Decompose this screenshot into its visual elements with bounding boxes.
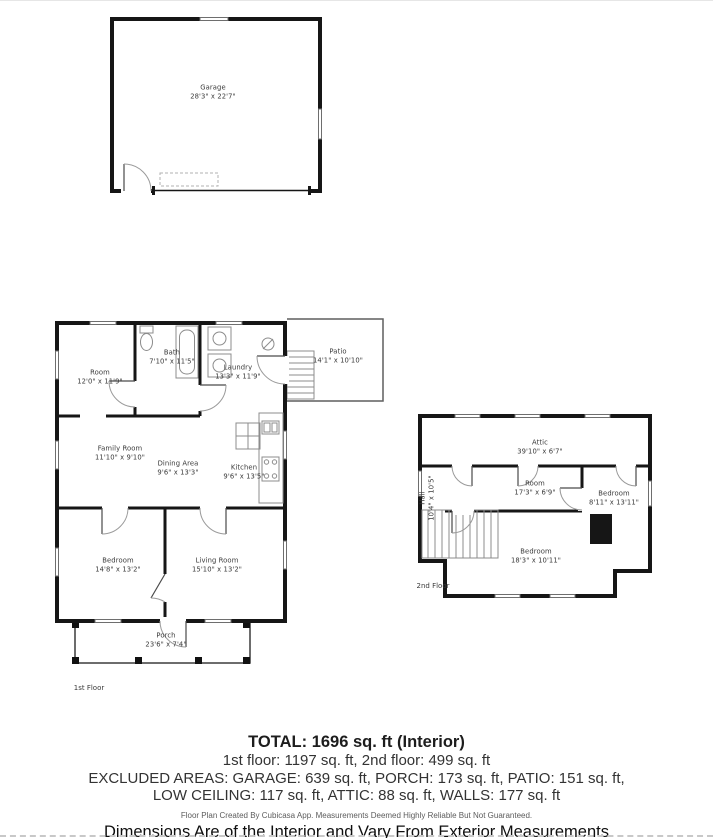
- summary-disclaimer: Floor Plan Created By Cubicasa App. Meas…: [0, 811, 713, 820]
- floor-plan-page: Garage 28'3" x 22'7" Room 12'0" x 11'9" …: [0, 0, 713, 838]
- room-dims: 23'6" x 7'4": [145, 640, 186, 649]
- room-dims: 18'3" x 10'11": [511, 556, 561, 565]
- garage-plan: [108, 15, 324, 195]
- room-label-living-room: Living Room 15'10" x 13'2": [192, 557, 242, 574]
- room-name: Porch: [145, 632, 186, 641]
- room-label-bedroom-large: Bedroom 18'3" x 10'11": [511, 548, 561, 565]
- room-label-room-1f: Room 12'0" x 11'9": [77, 369, 123, 386]
- room-label-bedroom-1f: Bedroom 14'8" x 13'2": [95, 557, 141, 574]
- room-name: Patio: [313, 348, 363, 357]
- room-dims: 14'8" x 13'2": [95, 565, 141, 574]
- room-label-bath: Bath 7'10" x 11'5": [149, 349, 195, 366]
- area-summary: TOTAL: 1696 sq. ft (Interior) 1st floor:…: [0, 732, 713, 838]
- room-dims: 8'11" x 13'11": [589, 498, 639, 507]
- summary-floors: 1st floor: 1197 sq. ft, 2nd floor: 499 s…: [0, 752, 713, 770]
- room-label-hall: Hall 10'4" x 10'5": [419, 475, 436, 521]
- room-dims: 39'10" x 6'7": [517, 447, 563, 456]
- room-label-room-2f: Room 17'3" x 6'9": [514, 480, 555, 497]
- room-dims: 9'6" x 13'3": [157, 468, 198, 477]
- room-name: Garage: [190, 84, 236, 93]
- room-name: Attic: [517, 439, 563, 448]
- room-name: Dining Area: [157, 460, 198, 469]
- room-label-bedroom-small: Bedroom 8'11" x 13'11": [589, 490, 639, 507]
- garage-outer-walls: [112, 19, 320, 191]
- room-label-dining-area: Dining Area 9'6" x 13'3": [157, 460, 198, 477]
- room-dims: 12'0" x 11'9": [77, 377, 123, 386]
- room-label-garage: Garage 28'3" x 22'7": [190, 84, 236, 101]
- bottom-dashed-divider: [0, 835, 713, 837]
- room-label-patio: Patio 14'1" x 10'10": [313, 348, 363, 365]
- room-dims: 17'3" x 6'9": [514, 488, 555, 497]
- floor-label-1st: 1st Floor: [74, 684, 105, 692]
- room-name: Bedroom: [511, 548, 561, 557]
- room-name: Kitchen: [223, 464, 264, 473]
- room-name: Room: [514, 480, 555, 489]
- room-dims: 7'10" x 11'5": [149, 357, 195, 366]
- summary-excluded-line1: EXCLUDED AREAS: GARAGE: 639 sq. ft, PORC…: [0, 770, 713, 788]
- room-label-porch: Porch 23'6" x 7'4": [145, 632, 186, 649]
- room-name: Bath: [149, 349, 195, 358]
- room-name: Room: [77, 369, 123, 378]
- room-name: Bedroom: [95, 557, 141, 566]
- room-name: Hall: [419, 475, 428, 521]
- room-name: Living Room: [192, 557, 242, 566]
- summary-excluded-line2: LOW CEILING: 117 sq. ft, ATTIC: 88 sq. f…: [0, 787, 713, 805]
- patio-stairs: [287, 351, 314, 399]
- room-name: Laundry: [215, 364, 261, 373]
- room-name: Bedroom: [589, 490, 639, 499]
- room-dims: 9'6" x 13'5": [223, 472, 264, 481]
- room-dims: 15'10" x 13'2": [192, 565, 242, 574]
- summary-total: TOTAL: 1696 sq. ft (Interior): [0, 732, 713, 752]
- wall-block: [590, 514, 612, 544]
- room-label-laundry: Laundry 13'3" x 11'9": [215, 364, 261, 381]
- floor-label-2nd: 2nd Floor: [417, 582, 450, 590]
- room-dims: 11'10" x 9'10": [95, 453, 145, 462]
- room-name: Family Room: [95, 445, 145, 454]
- room-dims: 13'3" x 11'9": [215, 372, 261, 381]
- room-dims: 10'4" x 10'5": [427, 475, 436, 521]
- room-label-family-room: Family Room 11'10" x 9'10": [95, 445, 145, 462]
- room-label-attic: Attic 39'10" x 6'7": [517, 439, 563, 456]
- room-dims: 28'3" x 22'7": [190, 92, 236, 101]
- room-label-kitchen: Kitchen 9'6" x 13'5": [223, 464, 264, 481]
- room-dims: 14'1" x 10'10": [313, 356, 363, 365]
